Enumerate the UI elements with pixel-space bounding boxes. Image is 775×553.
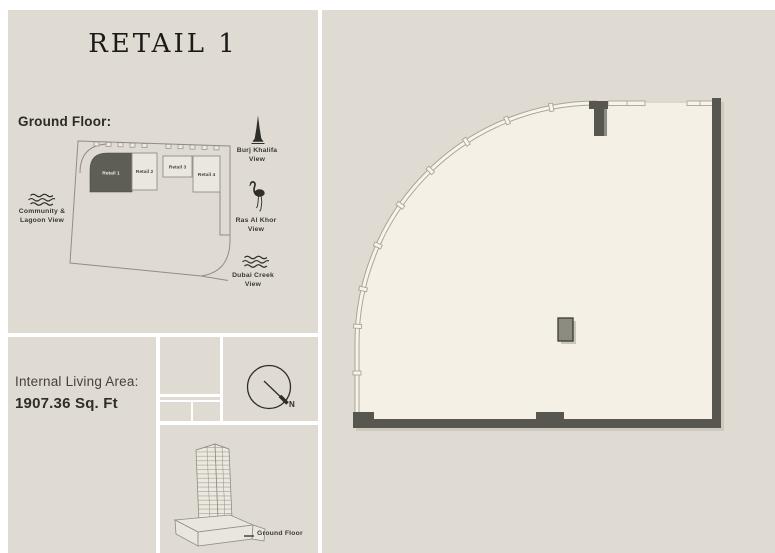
compass-north-label: N — [289, 400, 295, 409]
grid-cell — [193, 402, 220, 421]
building-cell: Ground Floor — [160, 425, 318, 553]
interior-column — [558, 318, 576, 344]
burj-khalifa-icon — [249, 115, 267, 146]
bottom-wall-pad-left — [353, 412, 374, 419]
top-column-cap — [589, 101, 608, 109]
waves-icon-community-lagoon — [28, 193, 55, 207]
area-value: 1907.36 Sq. Ft — [15, 395, 118, 412]
view-label-dubai-creek: Dubai Creek View — [203, 271, 303, 289]
keyplan-panel: RETAIL 1 Ground Floor: — [8, 10, 318, 333]
area-panel: Internal Living Area: 1907.36 Sq. Ft — [8, 337, 156, 553]
compass-cell: N — [223, 337, 318, 421]
right-wall — [712, 98, 721, 428]
bottom-wall — [353, 419, 721, 428]
floor-area — [357, 103, 713, 419]
flamingo-icon — [248, 179, 269, 213]
compass-icon: N — [223, 337, 318, 421]
waves-icon-dubai-creek — [242, 255, 269, 269]
area-label: Internal Living Area: — [15, 374, 139, 389]
top-column-stem — [594, 109, 604, 136]
unit-label-retail-3: Retail 3 — [169, 165, 187, 171]
floorplan-drawing — [322, 10, 775, 553]
bottom-wall-pad-mid — [536, 412, 564, 419]
view-label-community-lagoon: Community & Lagoon View — [8, 207, 76, 225]
view-label-burj-khalifa: Burj Khalifa View — [207, 146, 307, 164]
grid-cell — [160, 402, 191, 421]
unit-label-retail-4: Retail 4 — [198, 172, 216, 178]
grid-cell — [160, 337, 220, 394]
building-caption: Ground Floor — [257, 530, 303, 537]
unit-label-retail-1: Retail 1 — [102, 171, 120, 177]
grid-cell — [160, 397, 220, 400]
unit-label-retail-2: Retail 2 — [136, 169, 154, 175]
floorplan-panel — [322, 10, 775, 553]
view-label-ras-al-khor: Ras Al Khor View — [206, 216, 306, 234]
